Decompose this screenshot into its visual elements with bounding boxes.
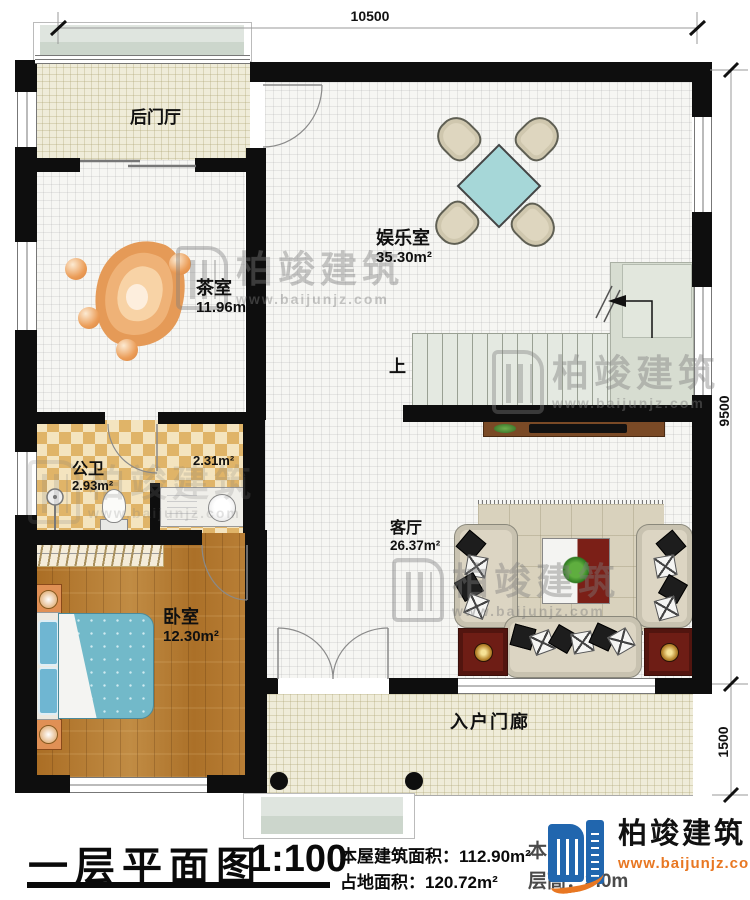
stat-building-area: 本屋建筑面积：112.90m² xyxy=(340,842,531,867)
wall-segment xyxy=(245,530,267,793)
tea-table-highlight xyxy=(126,284,148,310)
towel-area xyxy=(167,494,197,520)
bed-mattress xyxy=(58,613,154,719)
window xyxy=(458,678,655,694)
window xyxy=(17,452,37,515)
wall-segment xyxy=(15,147,37,242)
wall-segment xyxy=(252,678,278,694)
tv-cabinet xyxy=(483,421,665,437)
window xyxy=(694,287,712,395)
stairs-up-label: 上 xyxy=(389,357,406,377)
wall-segment xyxy=(403,405,693,422)
stool xyxy=(169,253,191,275)
wall-segment xyxy=(35,530,202,545)
wall-segment xyxy=(15,330,37,452)
wall-segment xyxy=(655,678,712,694)
plan-scale: 1:100 xyxy=(250,838,347,881)
floor-plan-canvas: 后门厅 娱乐室35.30m² 茶室11.96m² 公卫2.93m² 2.31m²… xyxy=(0,0,750,900)
wall-segment xyxy=(35,158,80,172)
pillow xyxy=(38,620,59,666)
stair-upper-landing xyxy=(622,264,692,338)
lamp xyxy=(39,725,58,744)
column xyxy=(270,772,288,790)
bed-headboard xyxy=(34,612,60,720)
wall-segment xyxy=(243,412,265,533)
wall-segment xyxy=(207,775,267,793)
brand-logo-icon xyxy=(548,820,610,888)
dim-right-lower: 1500 xyxy=(715,717,731,767)
wall-segment xyxy=(692,82,712,117)
wall-segment xyxy=(15,775,70,793)
wall-segment xyxy=(692,395,712,692)
coffee-table xyxy=(542,538,610,604)
room-label-living: 客厅26.37m² xyxy=(390,520,440,554)
nightstand xyxy=(34,584,62,614)
stair-treads xyxy=(412,333,610,408)
brand-logo: 柏竣建筑 www.baijunjz.com xyxy=(548,820,750,888)
wall-segment xyxy=(195,158,265,172)
wall-segment xyxy=(158,412,246,424)
room-label-backhall: 后门厅 xyxy=(130,108,181,128)
wall-segment xyxy=(15,515,37,793)
dim-top: 10500 xyxy=(340,8,400,24)
plant xyxy=(561,555,591,585)
side-table xyxy=(644,628,694,676)
pillow xyxy=(38,667,59,715)
side-table xyxy=(458,628,508,676)
window xyxy=(70,777,207,793)
bed-sheet xyxy=(59,614,153,718)
title-underline xyxy=(27,882,330,888)
stool xyxy=(65,258,87,280)
window xyxy=(17,92,37,147)
room-label-bedroom: 卧室12.30m² xyxy=(163,607,219,645)
dim-right-upper: 9500 xyxy=(716,386,732,436)
vanity-counter xyxy=(160,487,246,527)
sink xyxy=(208,494,236,522)
window xyxy=(694,117,712,212)
brand-name: 柏竣建筑 xyxy=(618,820,750,849)
column xyxy=(405,772,423,790)
nightstand xyxy=(34,719,62,750)
wall-segment xyxy=(15,60,37,92)
stool xyxy=(78,307,100,329)
pillow xyxy=(653,554,677,578)
wall-segment xyxy=(692,212,712,287)
lamp xyxy=(39,590,58,609)
wall-segment xyxy=(250,62,712,82)
wall-segment xyxy=(150,483,160,533)
room-label-bathroom: 公卫2.93m² xyxy=(72,461,113,494)
front-steps xyxy=(243,793,415,839)
plant xyxy=(494,424,516,433)
tv xyxy=(529,424,627,433)
window xyxy=(35,55,250,64)
room-label-tearoom: 茶室11.96m² xyxy=(196,278,251,316)
stool xyxy=(116,339,138,361)
brand-url: www.baijunjz.com xyxy=(618,855,750,872)
rug-tassels xyxy=(478,500,664,504)
room-label-entertainment: 娱乐室35.30m² xyxy=(376,228,432,266)
stat-footprint-area: 占地面积：120.72m² xyxy=(340,868,498,893)
wall-segment xyxy=(389,678,458,694)
room-porch-floor xyxy=(262,694,693,796)
room-label-washroom: 2.31m² xyxy=(193,454,234,469)
window xyxy=(17,242,37,330)
room-label-porch: 入户门廊 xyxy=(450,712,530,733)
wall-segment xyxy=(35,412,105,424)
